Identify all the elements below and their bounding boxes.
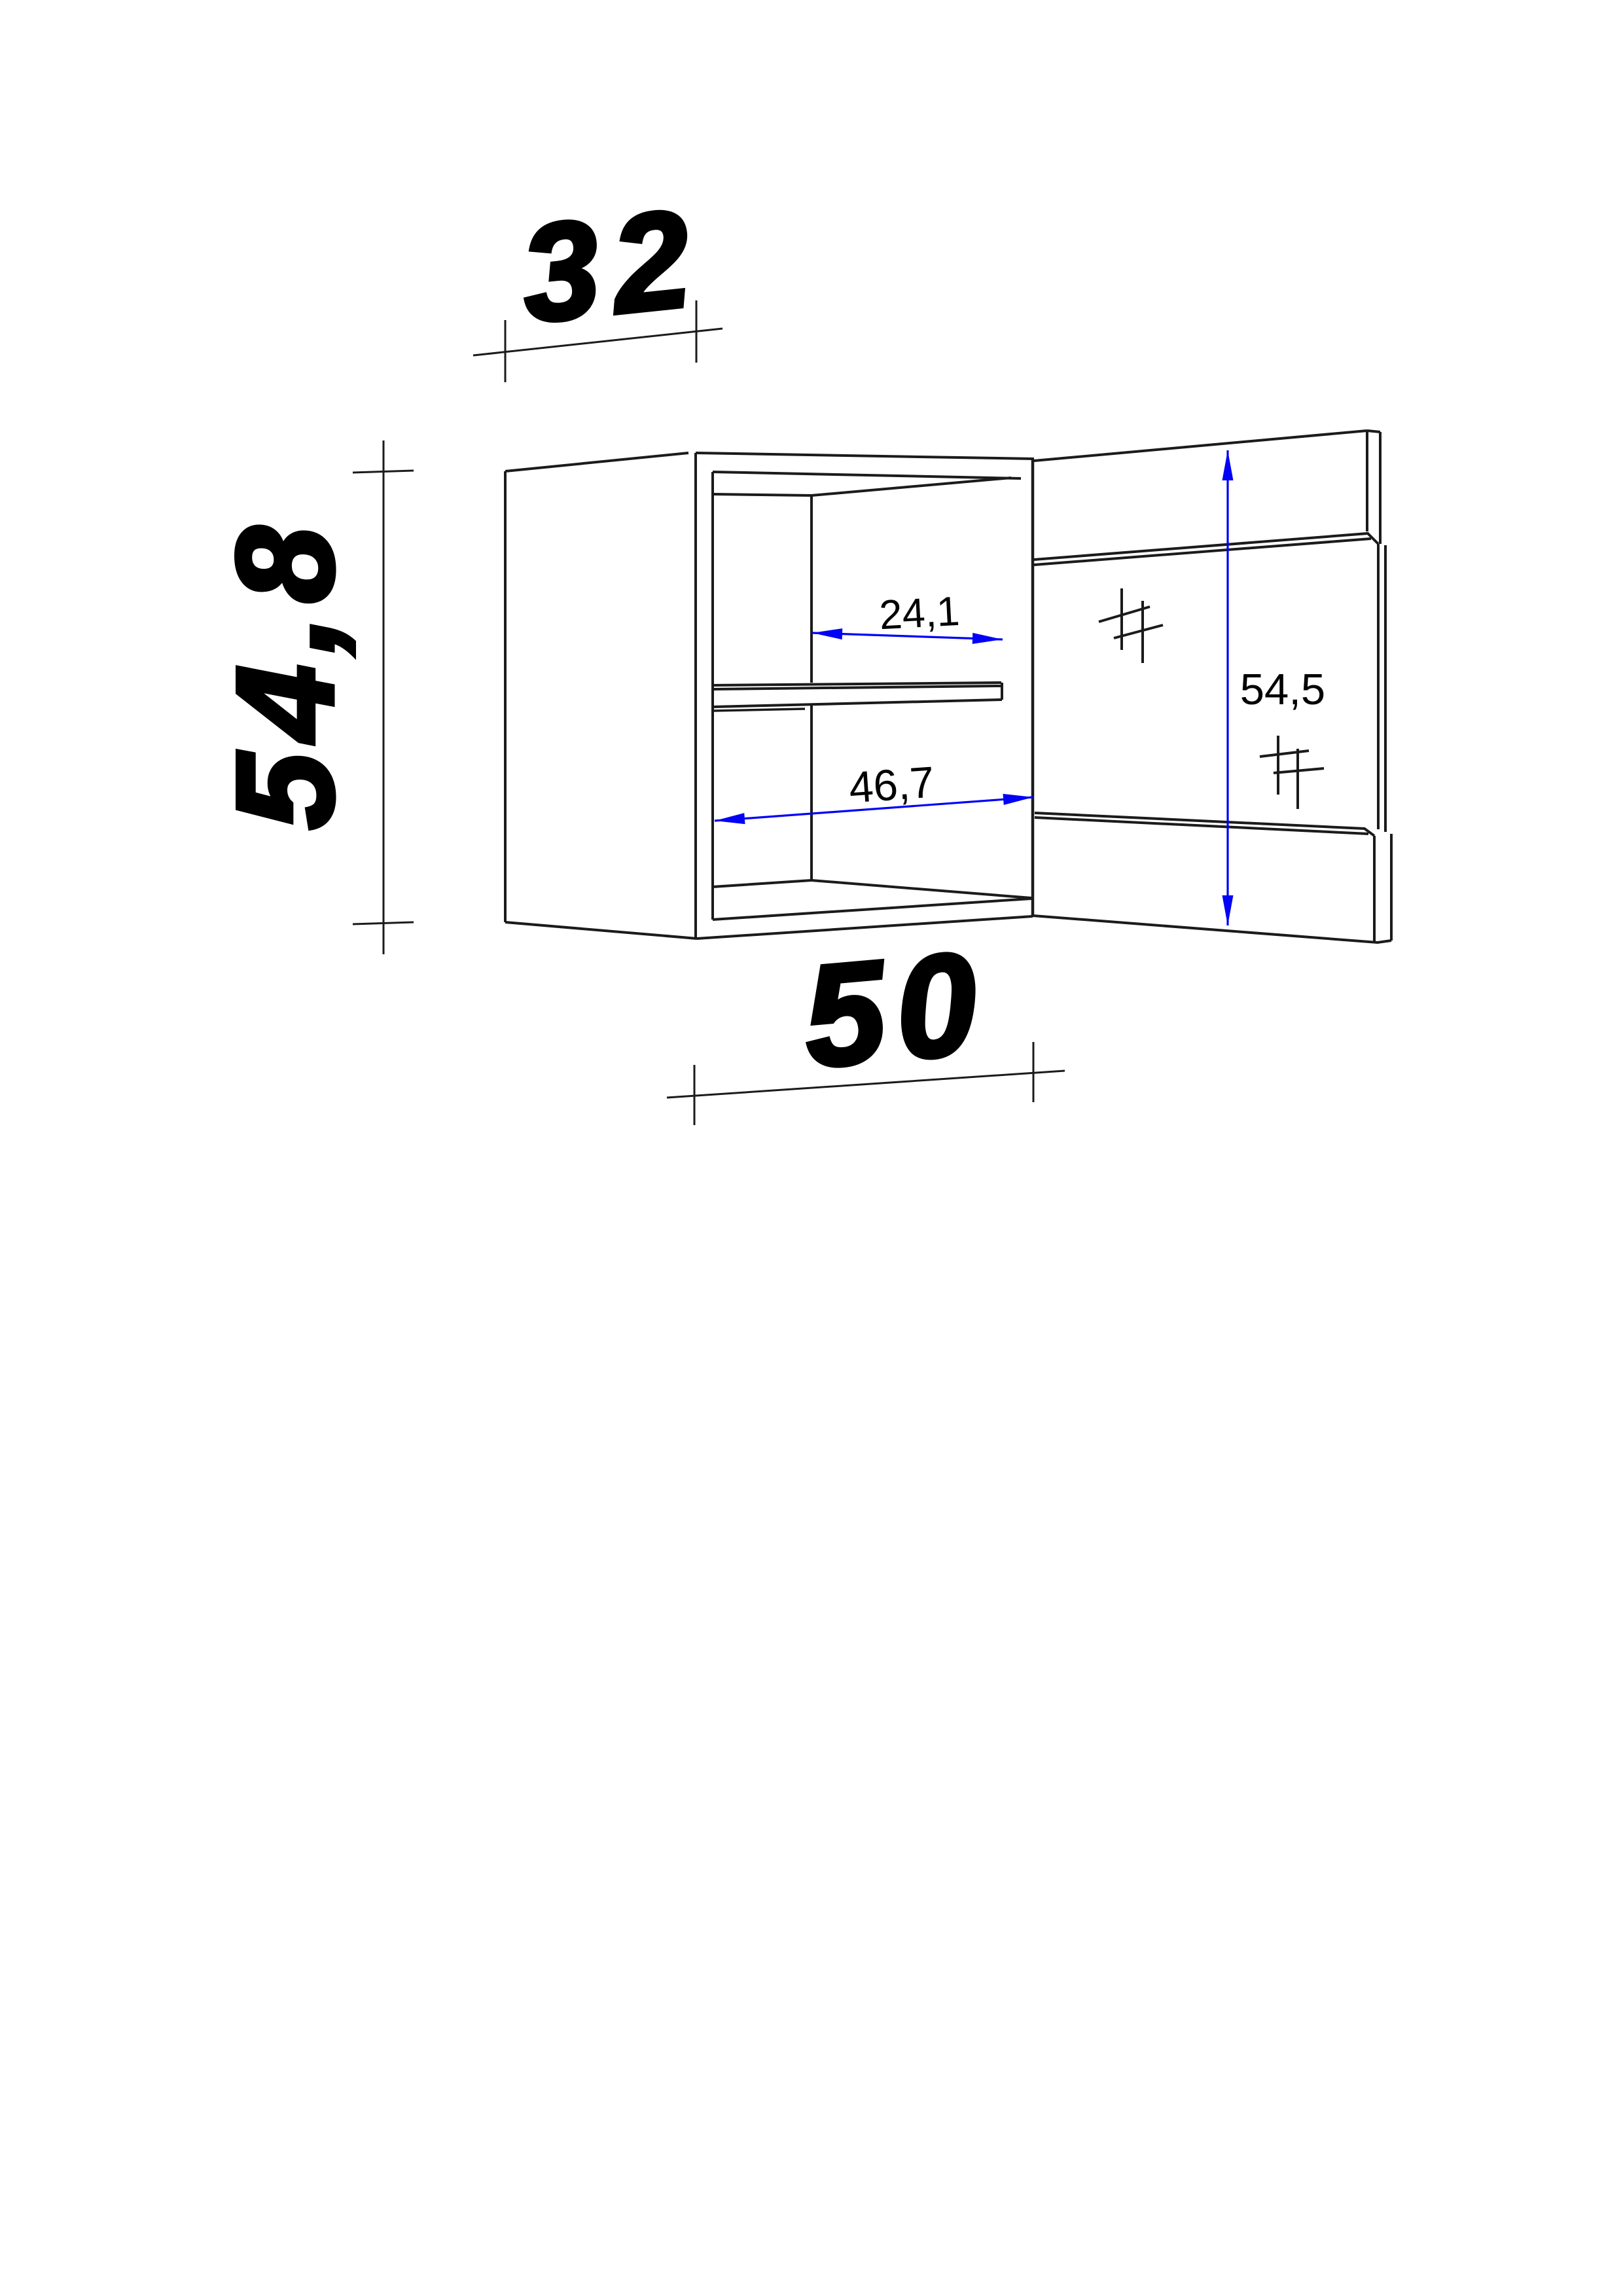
- svg-text:54,5: 54,5: [1240, 665, 1325, 714]
- svg-text:46,7: 46,7: [847, 758, 936, 813]
- svg-text:50: 50: [798, 922, 995, 1098]
- svg-text:54,8: 54,8: [208, 515, 362, 830]
- svg-text:24,1: 24,1: [878, 588, 961, 638]
- svg-text:32: 32: [514, 180, 711, 352]
